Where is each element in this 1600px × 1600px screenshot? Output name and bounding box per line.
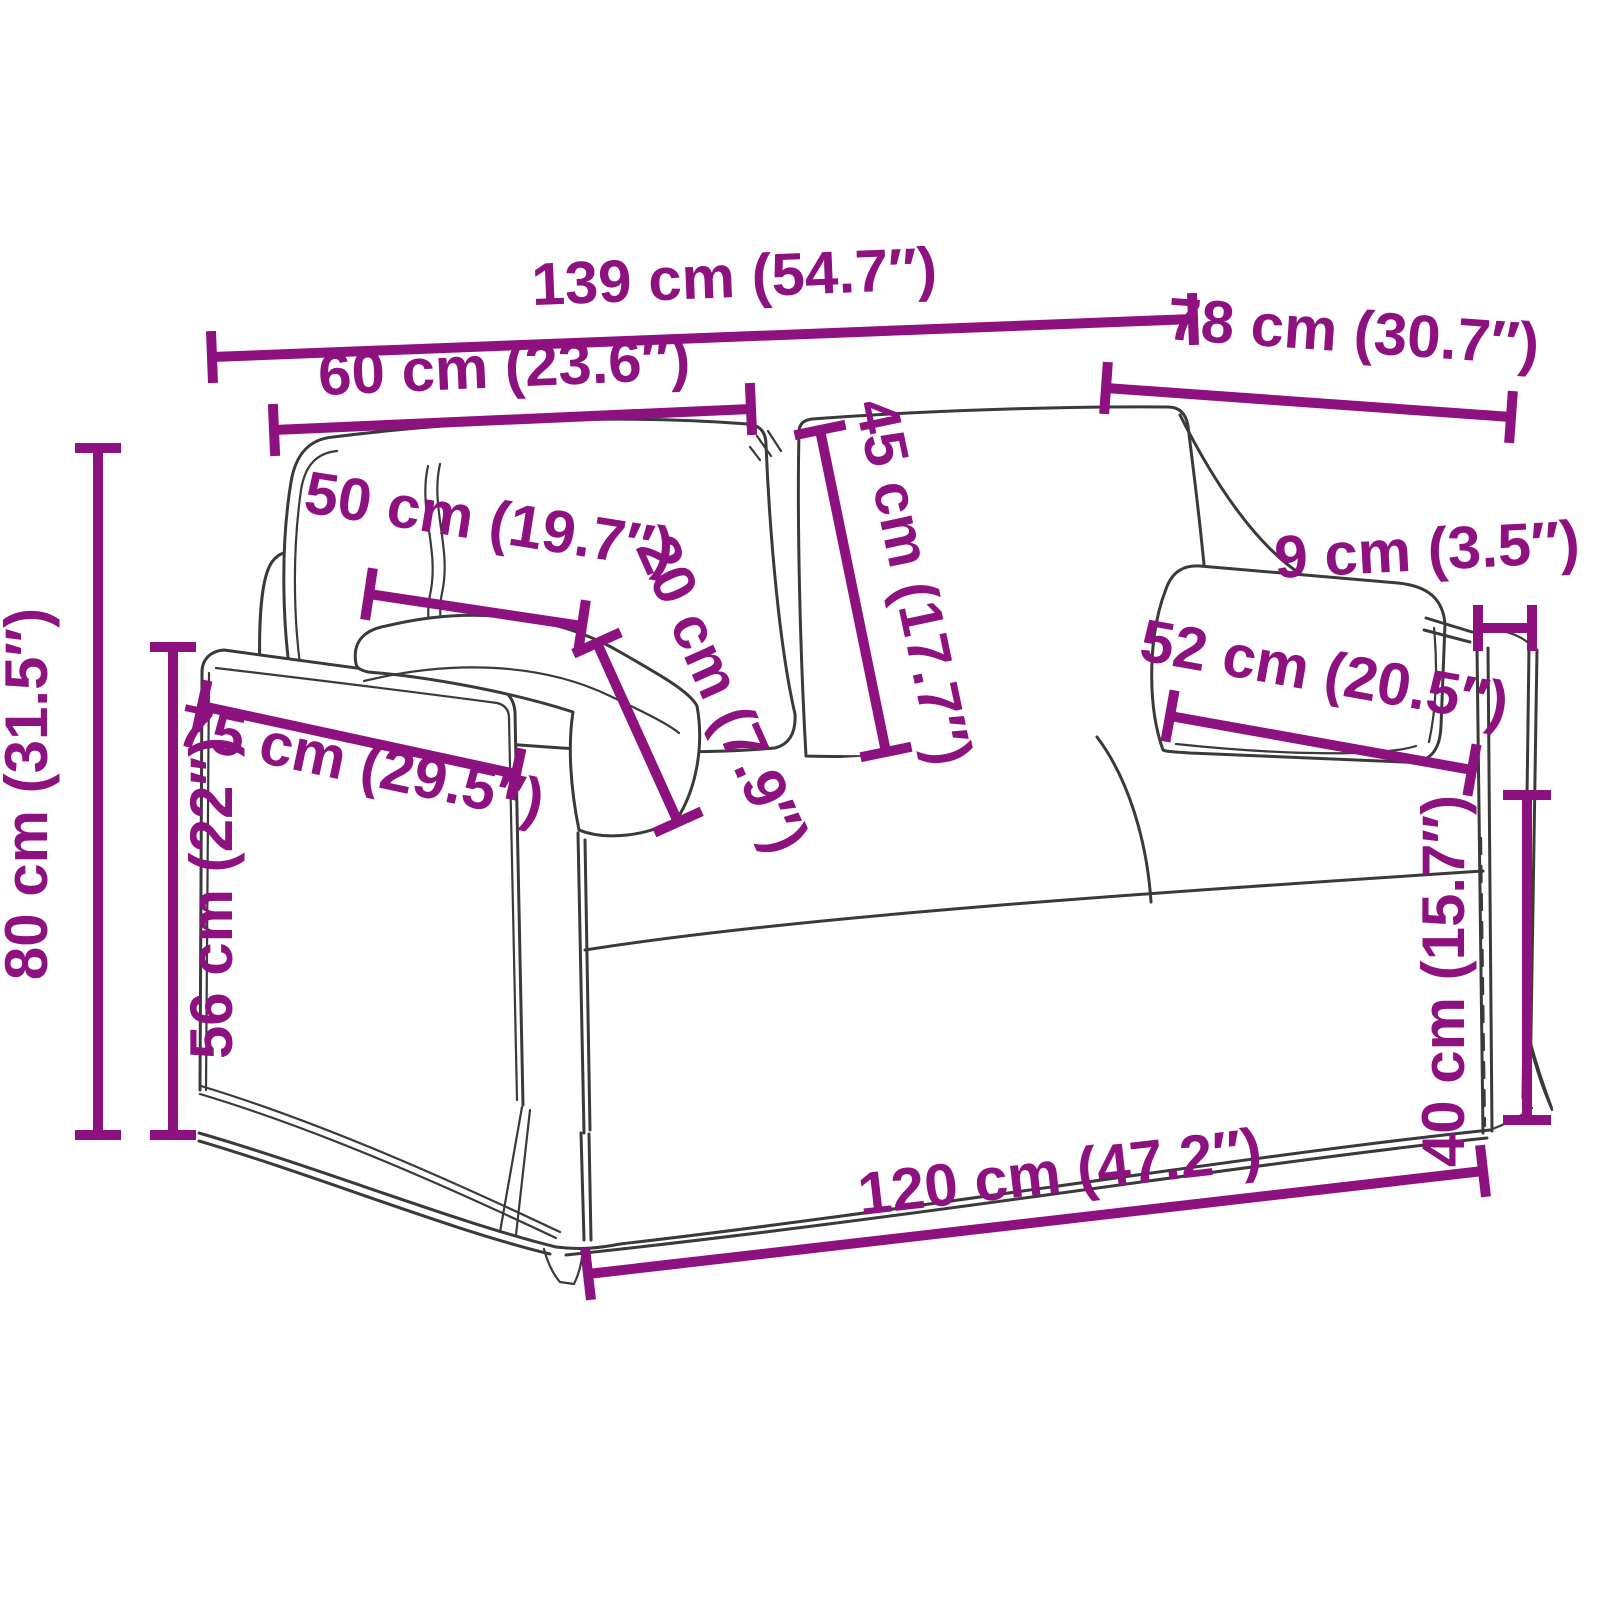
dimension-tick-backrest-width-start — [273, 404, 275, 456]
dimension-tick-backrest-width-end — [750, 383, 752, 435]
dimension-tick-seat-width-end — [1480, 1145, 1486, 1197]
dimension-diagram: 139 cm (54.7″)78 cm (30.7″)60 cm (23.6″)… — [0, 0, 1600, 1600]
dimension-tick-overall-width-start — [211, 331, 213, 383]
dimension-label-backrest-width: 60 cm (23.6″) — [317, 325, 692, 408]
sofa-seat-fill — [578, 740, 1483, 950]
dimension-tick-overall-depth-start — [1104, 362, 1108, 414]
dimension-overall-height: 80 cm (31.5″) — [0, 448, 121, 1135]
dimension-label-seat-width: 120 cm (47.2″) — [854, 1115, 1265, 1227]
dimension-label-arm-height: 56 cm (22″) — [178, 737, 245, 1059]
diagram-canvas: 139 cm (54.7″)78 cm (30.7″)60 cm (23.6″)… — [0, 0, 1600, 1600]
dimension-label-overall-depth: 78 cm (30.7″) — [1165, 285, 1541, 378]
dimension-label-overall-height: 80 cm (31.5″) — [0, 608, 60, 980]
dimension-label-overall-width: 139 cm (54.7″) — [530, 235, 938, 318]
skirt-corner-pleat — [581, 1133, 591, 1240]
dimension-tick-seat-width-start — [585, 1248, 591, 1300]
dimension-seat-width: 120 cm (47.2″) — [585, 1115, 1486, 1299]
dimension-label-armrest-width: 9 cm (3.5″) — [1273, 508, 1582, 591]
dimension-tick-overall-depth-end — [1509, 391, 1513, 443]
dimension-label-seat-height: 40 cm (15.7″) — [1410, 795, 1477, 1167]
